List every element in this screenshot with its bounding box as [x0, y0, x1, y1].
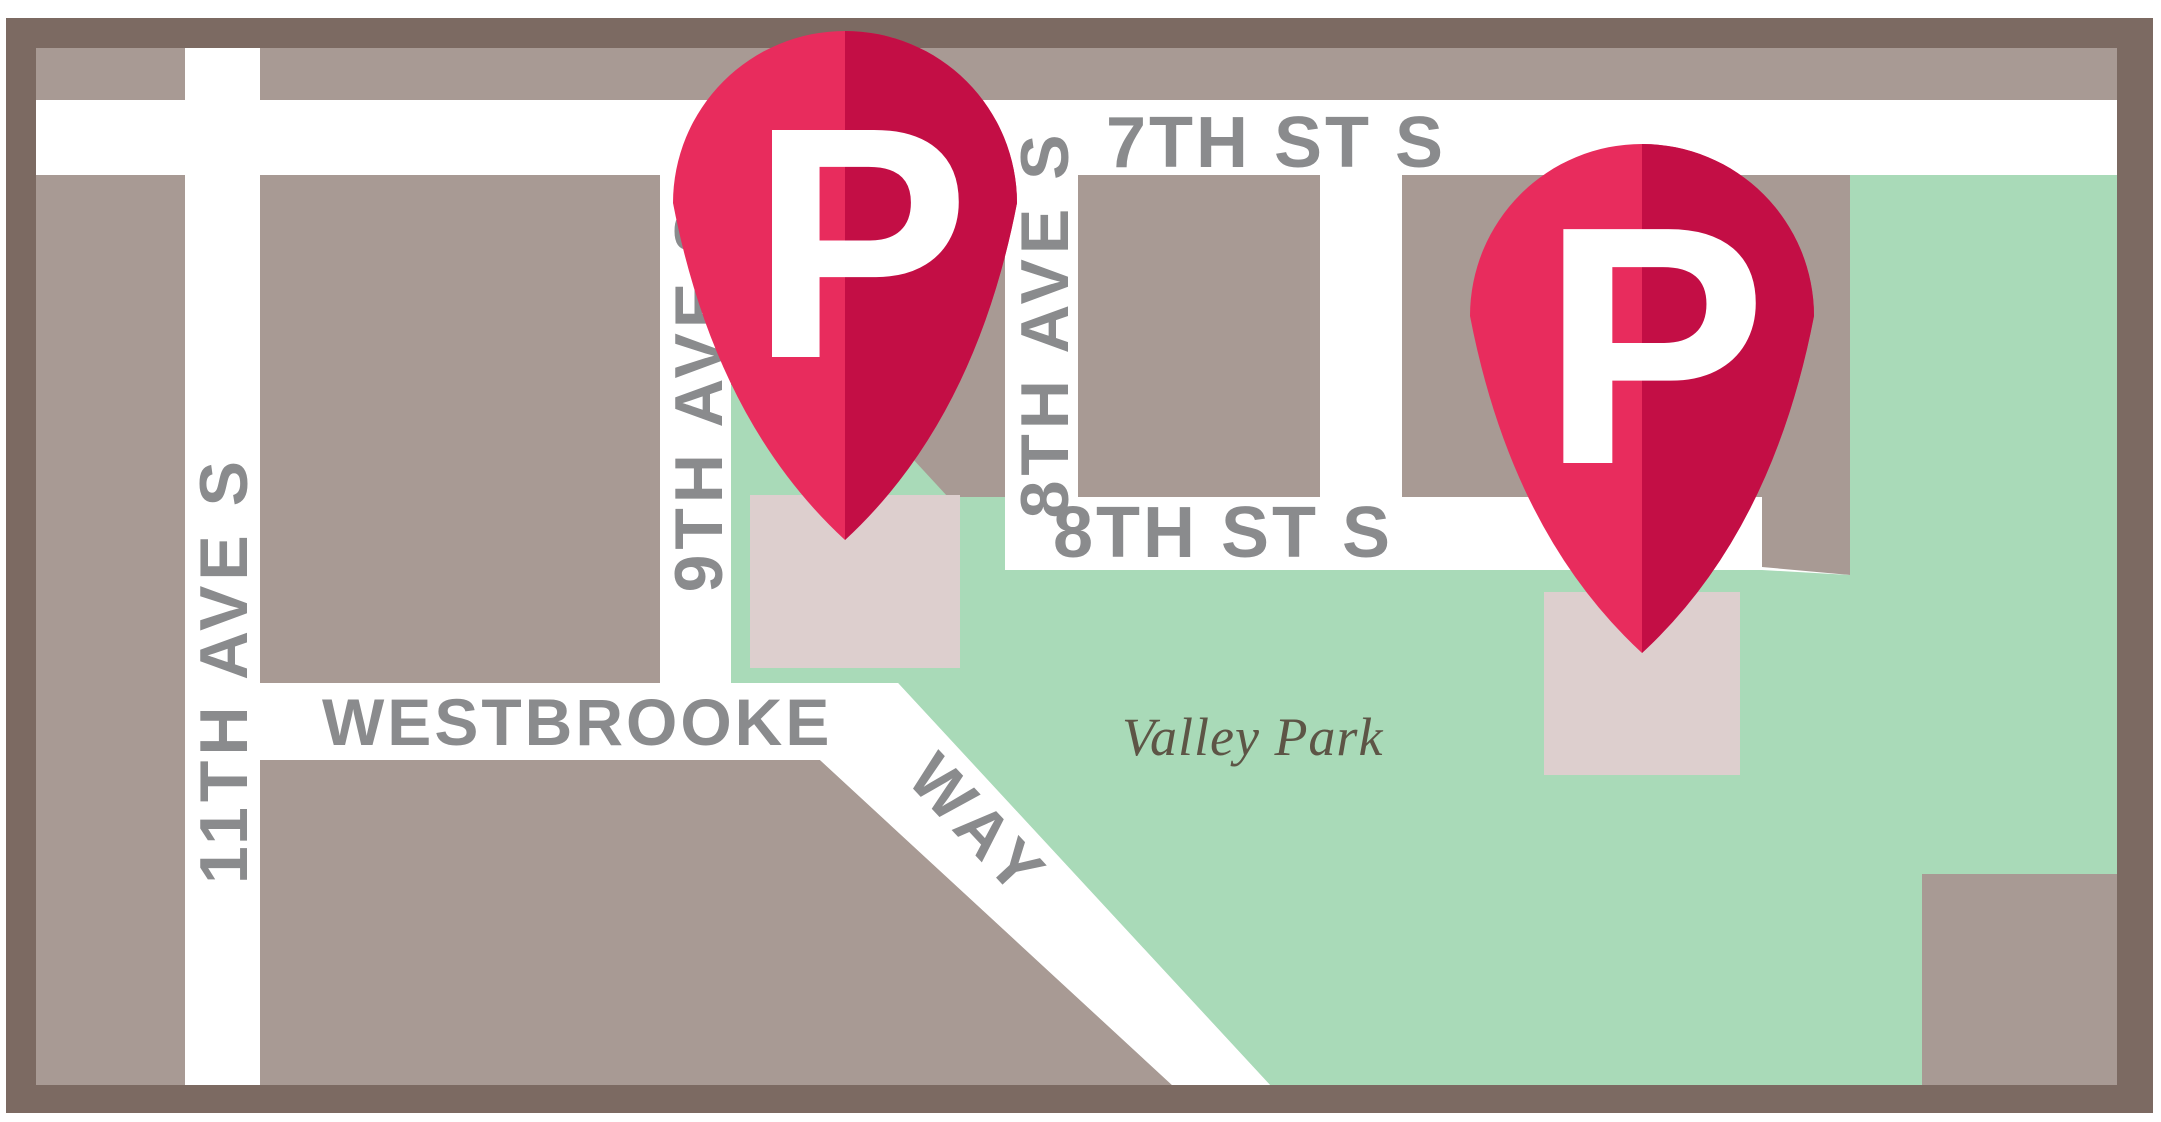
block-west-column: [36, 175, 185, 1085]
label-8th-ave-s: 8TH AVE S: [1007, 130, 1083, 519]
pin-east-letter: P: [1541, 156, 1768, 536]
label-11th-ave-s: 11TH AVE S: [186, 456, 262, 884]
road-unnamed-vertical: [1320, 175, 1402, 497]
label-westbrooke: WESTBROOKE: [322, 685, 832, 759]
block-top-left: [36, 48, 185, 100]
pin-west-letter: P: [750, 58, 970, 427]
label-7th-st-s: 7TH ST S: [1106, 103, 1446, 183]
label-valley-park: Valley Park: [1122, 707, 1383, 767]
parking-map: 7TH ST S 8TH ST S WESTBROOKE WAY 11TH AV…: [0, 0, 2161, 1122]
label-8th-st-s: 8TH ST S: [1053, 493, 1393, 573]
block-mid-east: [1078, 175, 1320, 497]
block-southeast-corner: [1922, 874, 2117, 1085]
block-westbrooke-north: [260, 175, 660, 683]
block-top-band: [260, 48, 2117, 100]
